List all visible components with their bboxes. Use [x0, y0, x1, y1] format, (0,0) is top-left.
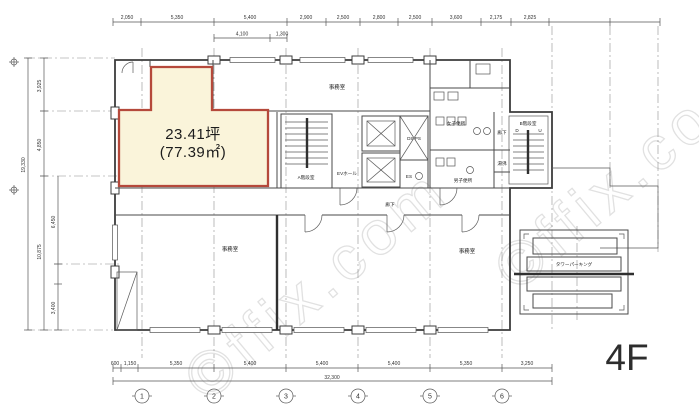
stair-a-label: A階段室	[298, 174, 315, 181]
floorplan-drawing: ©ffix.com ©ffix.com 2,050	[0, 0, 699, 419]
dim-top: 2,900	[300, 15, 313, 21]
survey-marker	[9, 185, 19, 195]
dim-top: 2,175	[490, 15, 503, 21]
shaft-label: DS PS	[407, 136, 421, 141]
highlight-room: 23.41坪 (77.39㎡)	[119, 67, 268, 186]
grid-bubble-1: 1	[132, 389, 152, 403]
dim-top-sub: 1,300	[276, 32, 289, 38]
stair-b: B階段室 D U	[509, 116, 548, 184]
dim-bottom: 600	[111, 361, 120, 367]
svg-text:5: 5	[428, 394, 432, 401]
dim-top: 2,825	[524, 15, 537, 21]
dim-bottom-total: 32,300	[324, 375, 340, 381]
dim-bottom: 3,250	[521, 361, 534, 367]
grid-bubbles: 1 2 3 4 5	[132, 389, 512, 403]
dim-left-total: 19,330	[21, 157, 27, 173]
grid-bubble-6: 6	[492, 389, 512, 403]
stair-a: A階段室	[281, 114, 332, 188]
svg-text:1: 1	[140, 394, 144, 401]
grid-bubble-3: 3	[276, 389, 296, 403]
dim-top: 2,500	[409, 15, 422, 21]
dim-left: 3,400	[51, 302, 57, 315]
dim-bottom: 5,400	[316, 361, 329, 367]
wc-block: 女子便所 男子便所 廊下 湯沸	[430, 112, 510, 188]
ev-hall-label: EVホール	[337, 171, 357, 176]
floor-label: 4F	[605, 337, 648, 378]
dim-bottom: 5,350	[460, 361, 473, 367]
svg-text:6: 6	[500, 394, 504, 401]
grid-bubble-5: 5	[420, 389, 440, 403]
stair-b-label: B階段室	[520, 120, 537, 127]
dim-left: 6,450	[51, 216, 57, 229]
dim-bottom: 5,400	[388, 361, 401, 367]
dim-left: 4,850	[37, 139, 43, 152]
svg-text:4: 4	[356, 394, 360, 401]
dim-top: 3,600	[450, 15, 463, 21]
watermark-text: ©ffix.com	[172, 155, 462, 414]
survey-marker	[9, 57, 19, 67]
dim-top-sub: 4,100	[236, 32, 249, 38]
dim-top: 2,050	[121, 15, 134, 21]
dim-top: 2,800	[373, 15, 386, 21]
area-sqm-label: (77.39㎡)	[160, 144, 227, 161]
corridor-center-label: 廊下	[385, 201, 395, 208]
dim-left: 3,925	[37, 80, 43, 93]
office-right-label: 事務室	[459, 247, 476, 255]
dim-top: 5,350	[171, 15, 184, 21]
es-label: ES	[406, 174, 412, 179]
dim-top: 5,400	[244, 15, 257, 21]
dim-bottom: 5,350	[170, 361, 183, 367]
grid-bubble-4: 4	[348, 389, 368, 403]
hot-water-label: 湯沸	[497, 160, 507, 167]
top-dimension-row: 2,050 5,350 5,400 2,900 2,500 2,800 2,50…	[113, 15, 660, 42]
area-tsubo-label: 23.41坪	[165, 126, 221, 143]
stair-down-label: D	[515, 128, 519, 133]
svg-text:2: 2	[212, 394, 216, 401]
svg-text:3: 3	[284, 394, 288, 401]
office-left-label: 事務室	[222, 245, 239, 253]
dim-left: 10,875	[37, 244, 43, 260]
tower-parking-label: タワーパーキング	[556, 261, 593, 268]
stair-up-label: U	[538, 128, 541, 133]
floorplan-page: ©ffix.com ©ffix.com 2,050	[0, 0, 699, 419]
dim-top: 2,500	[337, 15, 350, 21]
corridor-right-label: 廊下	[497, 129, 507, 136]
dim-bottom: 5,400	[244, 361, 257, 367]
wc-women-label: 女子便所	[447, 120, 466, 127]
office-top-label: 事務室	[329, 83, 346, 91]
wc-men-label: 男子便所	[454, 177, 473, 184]
left-dimension-column: 19,330 3,925 4,850 10,875 6,450 3,400	[9, 57, 62, 330]
dim-bottom: 1,150	[124, 361, 137, 367]
